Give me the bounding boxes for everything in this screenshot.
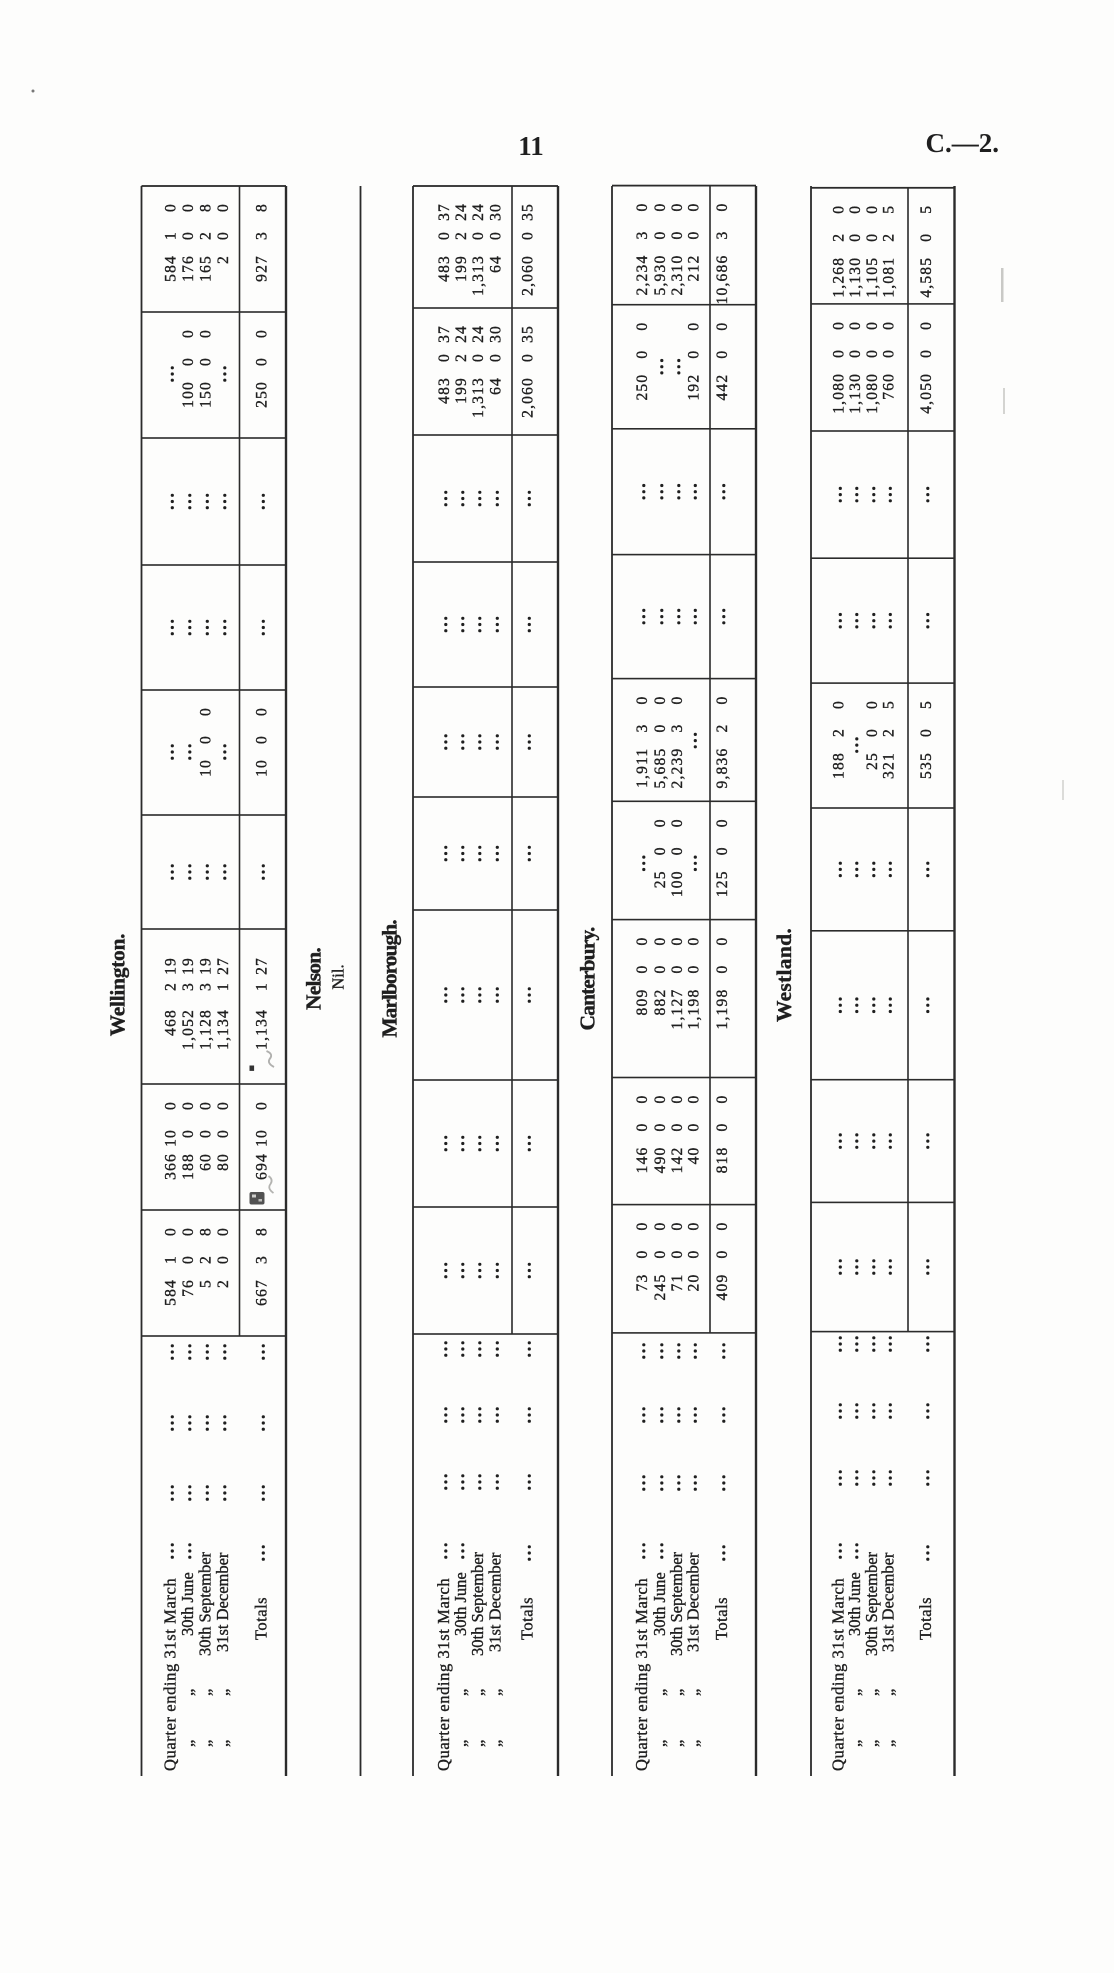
svg-text:0: 0	[831, 321, 848, 330]
svg-text:4,050: 4,050	[918, 373, 935, 414]
svg-text:0: 0	[669, 1250, 686, 1259]
svg-text:5: 5	[881, 700, 898, 709]
svg-text:64: 64	[488, 377, 505, 395]
svg-text:1,198: 1,198	[714, 989, 731, 1030]
svg-text:0: 0	[180, 203, 197, 212]
svg-text:19: 19	[180, 957, 197, 975]
svg-text:2: 2	[831, 728, 848, 737]
svg-text:0: 0	[163, 1101, 180, 1110]
svg-text:0: 0	[652, 1250, 669, 1259]
svg-text:24: 24	[453, 203, 470, 221]
svg-text:31st December: 31st December	[684, 1552, 703, 1652]
svg-text:1,198: 1,198	[686, 989, 703, 1030]
svg-text:0: 0	[881, 349, 898, 358]
svg-text:100: 100	[669, 870, 686, 897]
svg-text:3: 3	[669, 724, 686, 733]
svg-text:0: 0	[215, 1129, 232, 1138]
svg-text:5: 5	[881, 205, 898, 214]
svg-text:0: 0	[847, 205, 864, 214]
svg-text:30th September: 30th September	[196, 1551, 215, 1656]
svg-text:0: 0	[864, 700, 881, 709]
svg-text:„: „	[684, 1689, 703, 1696]
svg-text:0: 0	[634, 937, 651, 946]
svg-text:Canterbury.: Canterbury.	[576, 927, 600, 1031]
svg-text:142: 142	[669, 1147, 686, 1174]
svg-text:Totals: Totals	[252, 1597, 271, 1640]
svg-text:0: 0	[669, 696, 686, 705]
svg-text:5: 5	[918, 205, 935, 214]
svg-text:0: 0	[714, 965, 731, 974]
svg-text:0: 0	[254, 357, 271, 366]
svg-text:31st December: 31st December	[486, 1552, 505, 1652]
svg-text:1,105: 1,105	[864, 257, 881, 298]
svg-text:5: 5	[918, 700, 935, 709]
svg-text:0: 0	[686, 937, 703, 946]
svg-text:0: 0	[180, 1227, 197, 1236]
svg-text:0: 0	[634, 322, 651, 331]
svg-text:760: 760	[881, 373, 898, 400]
svg-text:24: 24	[470, 203, 487, 221]
svg-text:0: 0	[714, 1095, 731, 1104]
svg-text:0: 0	[198, 1101, 215, 1110]
svg-text:0: 0	[686, 1250, 703, 1259]
svg-text:„: „	[486, 1740, 505, 1747]
svg-text:0: 0	[652, 724, 669, 733]
svg-text:250: 250	[634, 374, 651, 401]
svg-text:366: 366	[163, 1153, 180, 1180]
svg-text:0: 0	[215, 203, 232, 212]
svg-text:0: 0	[669, 1095, 686, 1104]
svg-text:0: 0	[634, 965, 651, 974]
svg-text:5,685: 5,685	[652, 748, 669, 789]
svg-text:1,313: 1,313	[470, 255, 487, 296]
svg-text:1,080: 1,080	[864, 373, 881, 414]
svg-text:0: 0	[634, 1123, 651, 1132]
svg-text:2: 2	[215, 1279, 232, 1288]
svg-text:„: „	[486, 1689, 505, 1696]
svg-text:25: 25	[864, 752, 881, 770]
svg-text:Nil.: Nil.	[329, 964, 348, 989]
svg-text:0: 0	[652, 818, 669, 827]
svg-text:0: 0	[669, 937, 686, 946]
svg-text:„: „	[178, 1740, 197, 1747]
svg-text:27: 27	[215, 957, 232, 975]
svg-text:3: 3	[714, 231, 731, 240]
svg-text:20: 20	[686, 1274, 703, 1292]
svg-text:0: 0	[634, 1095, 651, 1104]
svg-text:0: 0	[180, 329, 197, 338]
svg-text:0: 0	[864, 349, 881, 358]
svg-text:37: 37	[436, 203, 453, 221]
svg-text:30th September: 30th September	[468, 1551, 487, 1656]
svg-text:2,060: 2,060	[520, 377, 537, 418]
svg-text:165: 165	[198, 255, 215, 282]
svg-text:0: 0	[254, 1101, 271, 1110]
svg-text:150: 150	[198, 381, 215, 408]
svg-text:0: 0	[520, 231, 537, 240]
svg-text:584: 584	[163, 1279, 180, 1306]
svg-text:„: „	[178, 1689, 197, 1696]
svg-text:1,130: 1,130	[847, 257, 864, 298]
svg-text:125: 125	[714, 870, 731, 897]
svg-text:192: 192	[686, 374, 703, 401]
svg-text:0: 0	[198, 1129, 215, 1138]
svg-text:„: „	[879, 1689, 898, 1696]
svg-text:2,310: 2,310	[669, 255, 686, 296]
svg-text:0: 0	[669, 846, 686, 855]
svg-text:0: 0	[215, 1101, 232, 1110]
svg-text:1,268: 1,268	[831, 257, 848, 298]
svg-text:Totals: Totals	[712, 1597, 731, 1640]
svg-text:0: 0	[470, 353, 487, 362]
svg-text:37: 37	[436, 325, 453, 343]
svg-text:25: 25	[652, 870, 669, 888]
svg-text:0: 0	[714, 1222, 731, 1231]
svg-text:0: 0	[634, 1222, 651, 1231]
svg-text:1,052: 1,052	[180, 1009, 197, 1050]
svg-text:0: 0	[652, 696, 669, 705]
svg-text:212: 212	[686, 255, 703, 282]
svg-text:1,134: 1,134	[254, 1009, 271, 1050]
svg-text:0: 0	[470, 231, 487, 240]
svg-text:0: 0	[652, 846, 669, 855]
svg-text:Quarter ending 31st March: Quarter ending 31st March	[632, 1578, 651, 1771]
svg-text:0: 0	[864, 728, 881, 737]
svg-text:19: 19	[198, 957, 215, 975]
svg-text:409: 409	[714, 1274, 731, 1301]
svg-text:1: 1	[254, 982, 271, 991]
svg-text:30: 30	[488, 325, 505, 343]
svg-text:0: 0	[847, 233, 864, 242]
svg-text:Westland.: Westland.	[772, 928, 796, 1022]
svg-text:0: 0	[180, 1101, 197, 1110]
svg-text:0: 0	[652, 937, 669, 946]
svg-text:0: 0	[918, 233, 935, 242]
svg-text:0: 0	[436, 231, 453, 240]
svg-text:1,128: 1,128	[198, 1009, 215, 1050]
svg-text:0: 0	[669, 965, 686, 974]
svg-text:0: 0	[686, 1123, 703, 1132]
svg-text:3: 3	[180, 982, 197, 991]
svg-text:71: 71	[669, 1274, 686, 1292]
svg-text:73: 73	[634, 1274, 651, 1292]
svg-text:0: 0	[198, 357, 215, 366]
svg-text:Totals: Totals	[518, 1597, 537, 1640]
svg-text:0: 0	[215, 231, 232, 240]
svg-text:0: 0	[254, 735, 271, 744]
svg-text:0: 0	[714, 1123, 731, 1132]
svg-text:8: 8	[254, 1227, 271, 1236]
svg-text:0: 0	[686, 350, 703, 359]
svg-text:100: 100	[180, 381, 197, 408]
svg-text:176: 176	[180, 255, 197, 282]
svg-text:3: 3	[634, 231, 651, 240]
svg-text:250: 250	[254, 381, 271, 408]
svg-text:0: 0	[714, 1250, 731, 1259]
svg-text:818: 818	[714, 1147, 731, 1174]
svg-text:10: 10	[163, 1129, 180, 1147]
svg-text:5,930: 5,930	[652, 255, 669, 296]
svg-text:483: 483	[436, 255, 453, 282]
svg-text:9,836: 9,836	[714, 748, 731, 789]
svg-text:0: 0	[198, 329, 215, 338]
svg-text:0: 0	[180, 231, 197, 240]
svg-text:809: 809	[634, 989, 651, 1016]
svg-text:0: 0	[634, 203, 651, 212]
svg-text:11: 11	[518, 131, 544, 161]
svg-text:0: 0	[652, 231, 669, 240]
svg-text:245: 245	[652, 1274, 669, 1301]
svg-text:Marlborough.: Marlborough.	[378, 920, 402, 1038]
svg-text:2: 2	[215, 255, 232, 264]
svg-text:146: 146	[634, 1147, 651, 1174]
svg-text:40: 40	[686, 1147, 703, 1165]
svg-text:0: 0	[520, 353, 537, 362]
svg-text:0: 0	[831, 700, 848, 709]
svg-text:0: 0	[488, 231, 505, 240]
svg-text:1,911: 1,911	[634, 748, 651, 788]
svg-text:584: 584	[163, 255, 180, 282]
svg-text:2: 2	[831, 233, 848, 242]
svg-text:0: 0	[686, 1222, 703, 1231]
svg-text:694: 694	[254, 1153, 271, 1180]
svg-text:0: 0	[254, 707, 271, 716]
svg-text:667: 667	[254, 1279, 271, 1306]
svg-text:35: 35	[520, 203, 537, 221]
svg-text:3: 3	[254, 231, 271, 240]
svg-text:30th June: 30th June	[178, 1572, 197, 1636]
svg-text:2: 2	[198, 1255, 215, 1264]
svg-text:0: 0	[669, 818, 686, 827]
svg-text:2: 2	[453, 231, 470, 240]
svg-text:Nelson.: Nelson.	[302, 948, 326, 1010]
svg-text:0: 0	[831, 205, 848, 214]
svg-text:0: 0	[652, 1222, 669, 1231]
svg-text:0: 0	[652, 203, 669, 212]
svg-text:C.—2.: C.—2.	[926, 128, 1000, 158]
svg-text:0: 0	[686, 231, 703, 240]
svg-text:2,239: 2,239	[669, 748, 686, 789]
svg-text:2: 2	[881, 728, 898, 737]
svg-text:0: 0	[918, 349, 935, 358]
svg-text:1,313: 1,313	[470, 377, 487, 418]
svg-text:0: 0	[163, 1227, 180, 1236]
svg-text:0: 0	[918, 728, 935, 737]
svg-text:„: „	[879, 1740, 898, 1747]
svg-text:„: „	[213, 1740, 232, 1747]
svg-text:0: 0	[180, 1129, 197, 1138]
svg-text:0: 0	[215, 1227, 232, 1236]
svg-text:8: 8	[198, 203, 215, 212]
svg-text:0: 0	[669, 203, 686, 212]
svg-text:1: 1	[163, 1255, 180, 1264]
svg-text:0: 0	[163, 203, 180, 212]
svg-text:1,134: 1,134	[215, 1009, 232, 1050]
svg-text:31st December: 31st December	[879, 1552, 898, 1652]
svg-text:64: 64	[488, 255, 505, 273]
svg-text:535: 535	[918, 752, 935, 779]
svg-text:0: 0	[634, 1250, 651, 1259]
svg-text:0: 0	[652, 965, 669, 974]
svg-text:490: 490	[652, 1147, 669, 1174]
svg-text:0: 0	[669, 1222, 686, 1231]
svg-text:0: 0	[634, 350, 651, 359]
svg-text:0: 0	[669, 231, 686, 240]
svg-text:442: 442	[714, 374, 731, 401]
svg-text:0: 0	[714, 937, 731, 946]
svg-text:24: 24	[453, 325, 470, 343]
svg-text:2: 2	[881, 233, 898, 242]
svg-text:2: 2	[714, 724, 731, 733]
svg-text:0: 0	[714, 203, 731, 212]
svg-text:76: 76	[180, 1279, 197, 1297]
svg-text:8: 8	[254, 203, 271, 212]
svg-text:4,585: 4,585	[918, 257, 935, 298]
svg-text:0: 0	[198, 735, 215, 744]
svg-text:„: „	[468, 1740, 487, 1747]
svg-text:1,080: 1,080	[831, 373, 848, 414]
svg-text:882: 882	[652, 989, 669, 1016]
svg-text:0: 0	[652, 1123, 669, 1132]
svg-text:0: 0	[652, 1095, 669, 1104]
svg-text:0: 0	[180, 1255, 197, 1264]
svg-text:927: 927	[254, 255, 271, 282]
svg-text:1: 1	[163, 231, 180, 240]
svg-text:0: 0	[918, 321, 935, 330]
svg-text:24: 24	[470, 325, 487, 343]
svg-text:0: 0	[634, 696, 651, 705]
svg-text:1: 1	[215, 982, 232, 991]
svg-text:„: „	[213, 1689, 232, 1696]
svg-text:0: 0	[847, 321, 864, 330]
svg-text:10: 10	[198, 759, 215, 777]
svg-text:0: 0	[881, 321, 898, 330]
svg-text:„: „	[196, 1740, 215, 1747]
svg-text:1,127: 1,127	[669, 989, 686, 1030]
svg-text:10,686: 10,686	[714, 255, 731, 305]
svg-text:468: 468	[163, 1009, 180, 1036]
svg-text:80: 80	[215, 1153, 232, 1171]
svg-text:199: 199	[453, 255, 470, 282]
svg-text:0: 0	[686, 203, 703, 212]
svg-text:0: 0	[714, 350, 731, 359]
svg-text:31st December: 31st December	[213, 1552, 232, 1652]
svg-text:1,130: 1,130	[847, 373, 864, 414]
svg-text:0: 0	[669, 1123, 686, 1132]
svg-text:0: 0	[831, 349, 848, 358]
svg-text:2: 2	[163, 982, 180, 991]
svg-text:0: 0	[714, 696, 731, 705]
svg-text:0: 0	[686, 322, 703, 331]
svg-text:3: 3	[634, 724, 651, 733]
svg-text:„: „	[196, 1689, 215, 1696]
svg-text:Quarter ending 31st March: Quarter ending 31st March	[161, 1578, 180, 1771]
svg-text:0: 0	[254, 329, 271, 338]
svg-text:2,234: 2,234	[634, 255, 651, 296]
svg-text:0: 0	[847, 349, 864, 358]
svg-text:0: 0	[488, 353, 505, 362]
svg-text:188: 188	[180, 1153, 197, 1180]
svg-text:199: 199	[453, 377, 470, 404]
svg-text:0: 0	[714, 818, 731, 827]
svg-text:60: 60	[198, 1153, 215, 1171]
svg-text:30: 30	[488, 203, 505, 221]
svg-text:3: 3	[198, 982, 215, 991]
svg-text:„: „	[468, 1689, 487, 1696]
svg-text:0: 0	[686, 965, 703, 974]
svg-text:188: 188	[831, 752, 848, 779]
svg-text:5: 5	[198, 1279, 215, 1288]
svg-text:Wellington.: Wellington.	[106, 934, 130, 1036]
svg-text:0: 0	[215, 1255, 232, 1264]
svg-text:483: 483	[436, 377, 453, 404]
svg-text:0: 0	[180, 357, 197, 366]
svg-text:0: 0	[714, 846, 731, 855]
svg-text:0: 0	[864, 205, 881, 214]
svg-text:0: 0	[436, 353, 453, 362]
svg-text:1,081: 1,081	[881, 257, 898, 298]
svg-text:27: 27	[254, 957, 271, 975]
svg-text:3: 3	[254, 1255, 271, 1264]
svg-text:19: 19	[163, 957, 180, 975]
svg-text:8: 8	[198, 1227, 215, 1236]
svg-text:Totals: Totals	[916, 1597, 935, 1640]
svg-text:0: 0	[198, 707, 215, 716]
svg-text:2: 2	[453, 353, 470, 362]
svg-text:0: 0	[686, 1095, 703, 1104]
svg-text:10: 10	[254, 759, 271, 777]
svg-text:2: 2	[198, 231, 215, 240]
svg-text:0: 0	[864, 233, 881, 242]
svg-text:„: „	[684, 1740, 703, 1747]
svg-text:35: 35	[520, 325, 537, 343]
svg-text:321: 321	[881, 752, 898, 779]
svg-text:2,060: 2,060	[520, 255, 537, 296]
svg-text:0: 0	[714, 322, 731, 331]
svg-text:0: 0	[864, 321, 881, 330]
svg-text:10: 10	[254, 1129, 271, 1147]
